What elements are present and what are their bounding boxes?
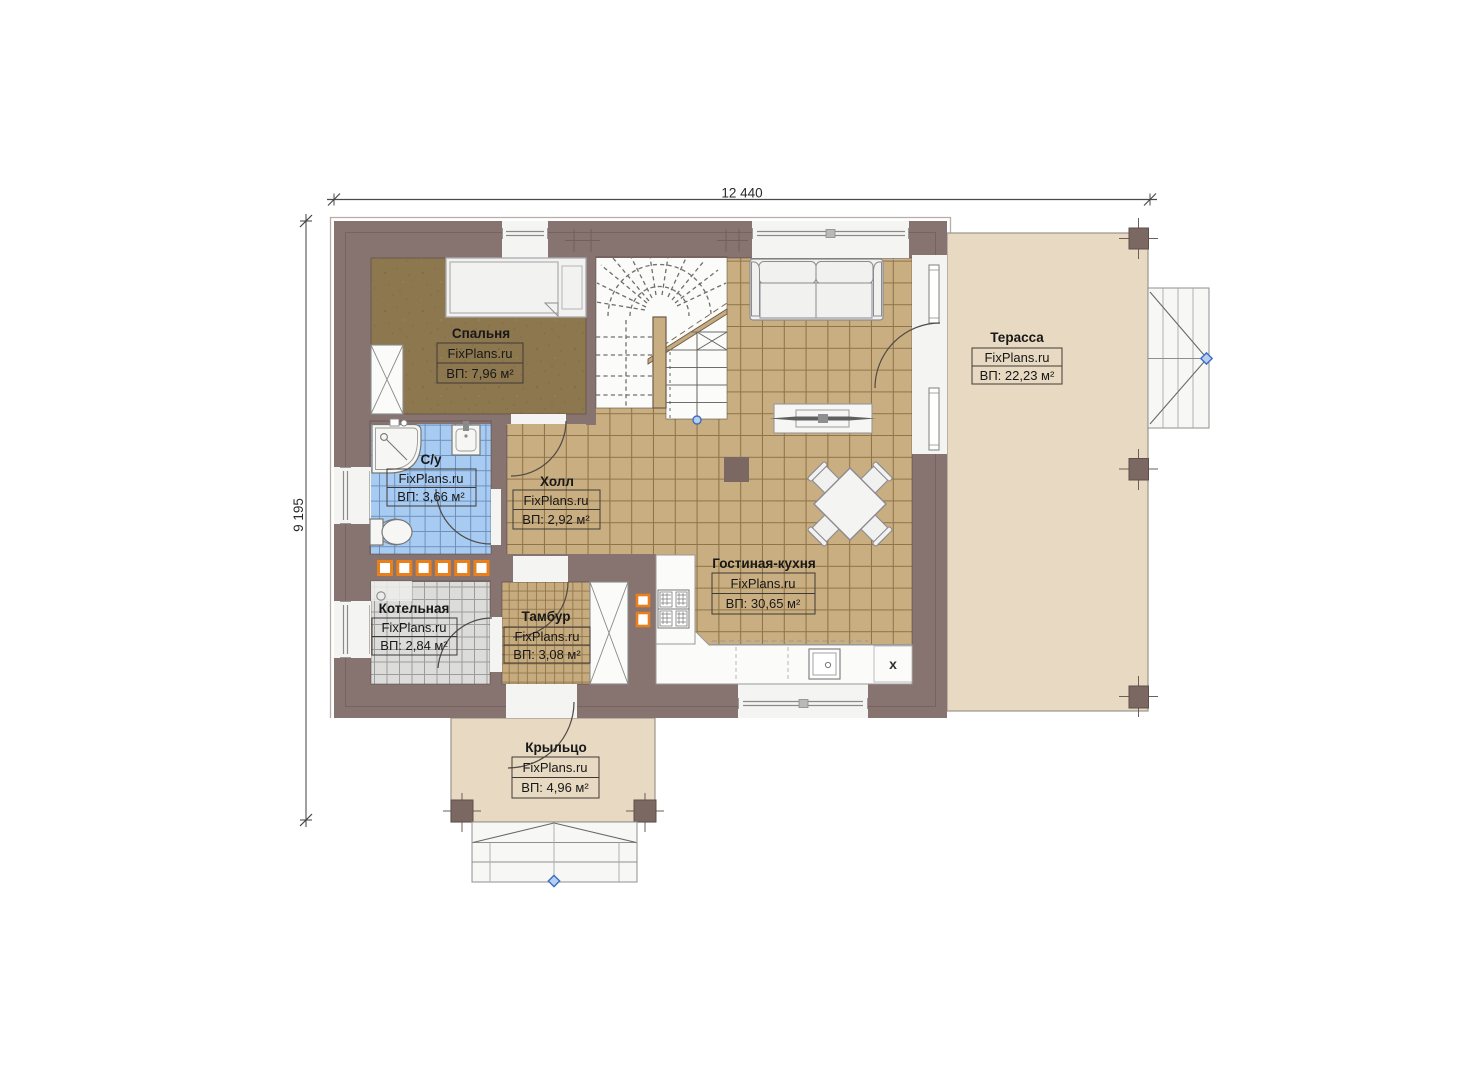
svg-text:ВП: 2,84 м²: ВП: 2,84 м²: [380, 638, 448, 653]
svg-text:ВП: 3,08 м²: ВП: 3,08 м²: [513, 647, 581, 662]
svg-text:FixPlans.ru: FixPlans.ru: [381, 620, 446, 635]
svg-text:ВП: 2,92 м²: ВП: 2,92 м²: [522, 512, 590, 527]
svg-text:Котельная: Котельная: [379, 601, 450, 616]
svg-text:С/у: С/у: [420, 452, 442, 467]
svg-text:FixPlans.ru: FixPlans.ru: [522, 760, 587, 775]
svg-text:Крыльцо: Крыльцо: [525, 740, 586, 755]
svg-text:FixPlans.ru: FixPlans.ru: [730, 576, 795, 591]
svg-text:x: x: [889, 656, 897, 672]
svg-text:FixPlans.ru: FixPlans.ru: [514, 629, 579, 644]
svg-text:ВП: 7,96 м²: ВП: 7,96 м²: [446, 366, 514, 381]
svg-text:FixPlans.ru: FixPlans.ru: [447, 346, 512, 361]
svg-text:ВП: 3,66 м²: ВП: 3,66 м²: [397, 489, 465, 504]
svg-text:FixPlans.ru: FixPlans.ru: [523, 493, 588, 508]
svg-text:12 440: 12 440: [721, 186, 762, 201]
svg-text:9 195: 9 195: [291, 498, 306, 532]
svg-text:Спальня: Спальня: [452, 326, 510, 341]
svg-text:Гостиная-кухня: Гостиная-кухня: [712, 556, 815, 571]
svg-text:ВП: 22,23 м²: ВП: 22,23 м²: [980, 368, 1055, 383]
svg-text:Холл: Холл: [540, 474, 574, 489]
svg-text:ВП: 4,96 м²: ВП: 4,96 м²: [521, 780, 589, 795]
svg-text:Тамбур: Тамбур: [522, 609, 571, 624]
svg-text:Терасса: Терасса: [990, 330, 1044, 345]
svg-text:ВП: 30,65 м²: ВП: 30,65 м²: [726, 596, 801, 611]
svg-text:FixPlans.ru: FixPlans.ru: [398, 471, 463, 486]
svg-text:FixPlans.ru: FixPlans.ru: [984, 350, 1049, 365]
